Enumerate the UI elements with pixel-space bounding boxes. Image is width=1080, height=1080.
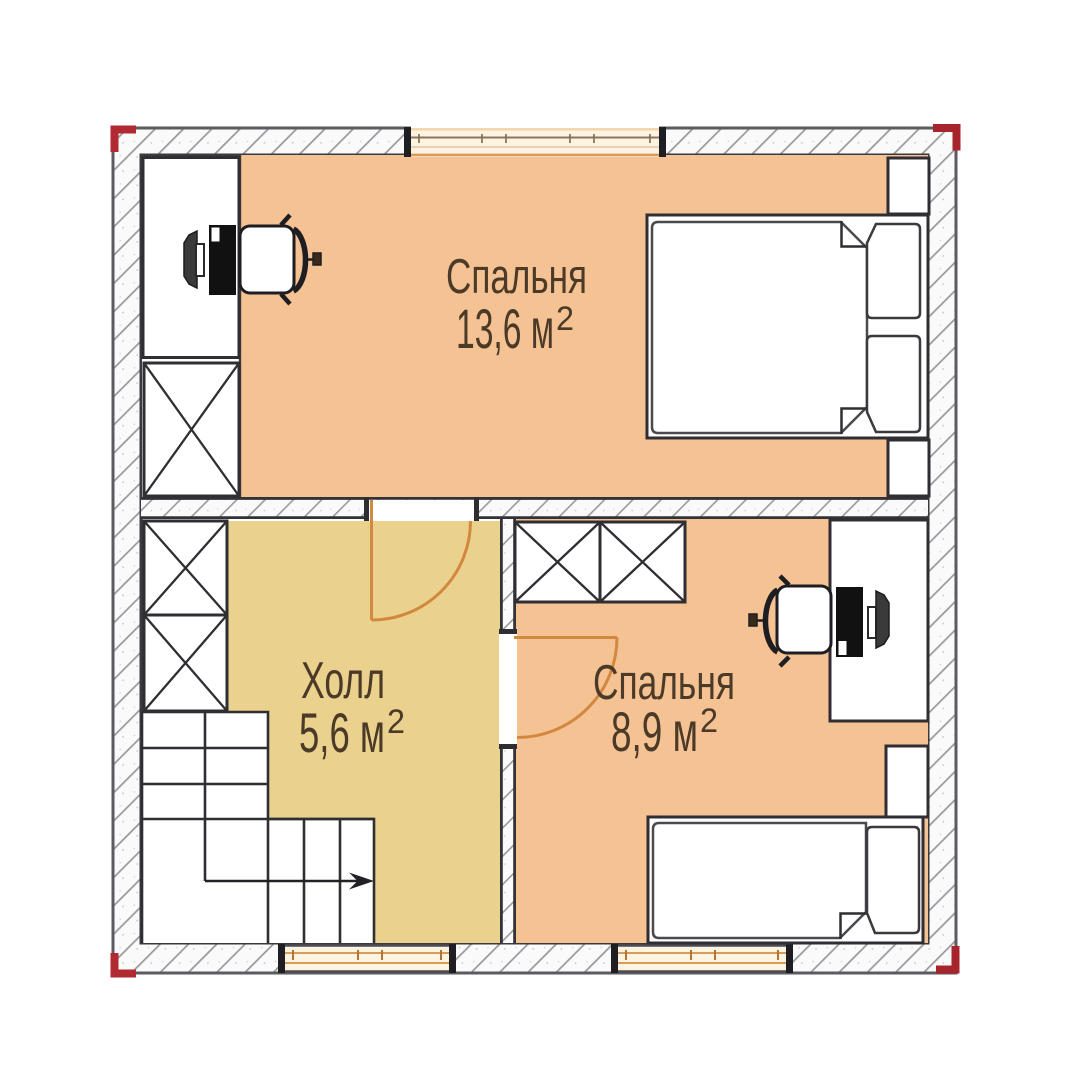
svg-text:5,6 м: 5,6 м <box>299 701 385 764</box>
svg-text:Спальня: Спальня <box>446 250 587 304</box>
svg-text:2: 2 <box>700 702 718 740</box>
svg-text:13,6 м: 13,6 м <box>456 297 554 360</box>
svg-text:2: 2 <box>556 300 574 338</box>
svg-text:2: 2 <box>387 703 405 741</box>
svg-text:8,9 м: 8,9 м <box>611 700 698 763</box>
